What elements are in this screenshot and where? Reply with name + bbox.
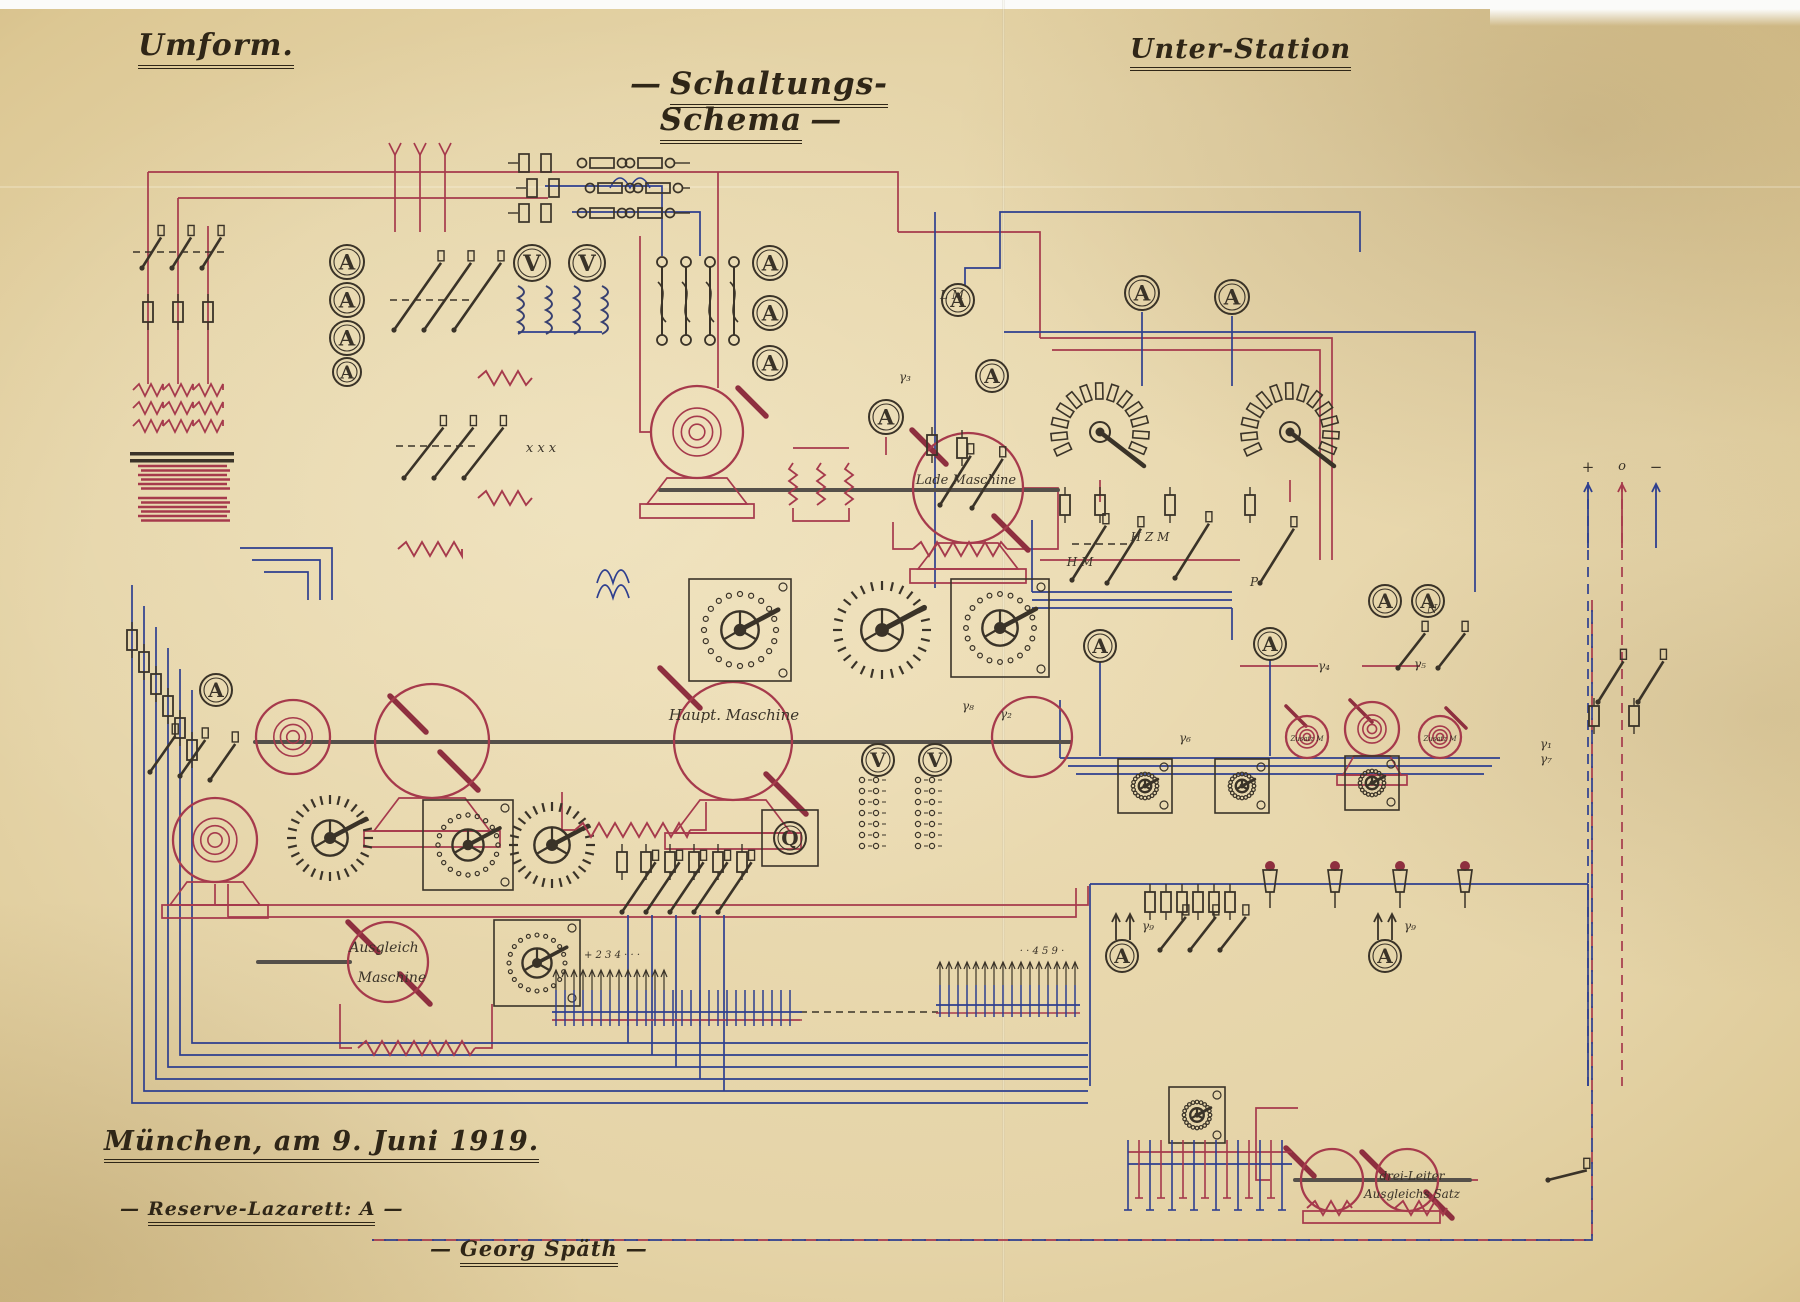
svg-text:x x x: x x x xyxy=(526,441,557,456)
svg-text:A: A xyxy=(338,327,356,352)
battery-combs xyxy=(552,962,1292,1210)
svg-text:Maschine: Maschine xyxy=(357,970,427,986)
cell-switches xyxy=(1051,383,1339,466)
ammeter-icon: A xyxy=(753,296,787,330)
page-title-right: Unter-Station xyxy=(1130,34,1351,71)
cartridge-fuse-icon xyxy=(657,257,667,345)
svg-text:A: A xyxy=(1091,634,1108,658)
knife-switch-icon xyxy=(207,732,238,783)
machines xyxy=(173,386,1461,1211)
fuse-row xyxy=(508,154,690,172)
machine-icon xyxy=(348,922,428,1002)
dash-right: — xyxy=(618,1236,656,1261)
svg-text:γ₅: γ₅ xyxy=(1414,657,1426,671)
svg-text:Ausgleich: Ausgleich xyxy=(347,940,418,956)
svg-text:Ausgleichs Satz: Ausgleichs Satz xyxy=(1363,1187,1461,1201)
svg-text:γ₇: γ₇ xyxy=(1540,752,1552,766)
rheostat-dial-icon xyxy=(1215,759,1269,813)
svg-text:H M: H M xyxy=(1066,555,1094,569)
svg-text:V: V xyxy=(577,251,596,277)
machine-icon xyxy=(651,386,743,478)
svg-text:A: A xyxy=(1133,282,1151,307)
svg-text:P: P xyxy=(1249,575,1259,589)
arrow-icon xyxy=(1388,914,1396,940)
ammeter-icon: A xyxy=(330,245,364,279)
svg-text:N: N xyxy=(1426,602,1438,616)
dash-left: — xyxy=(112,1198,148,1220)
dash-left: — xyxy=(622,66,670,102)
fuse-icon xyxy=(1225,884,1235,920)
footer-signature: —Georg Späth— xyxy=(422,1236,656,1261)
voltmeter-icon: V xyxy=(569,245,605,281)
battery-tap-contacts xyxy=(859,777,942,848)
rheostat-dial-icon xyxy=(951,579,1049,677)
svg-text:Haupt. Maschine: Haupt. Maschine xyxy=(668,706,799,724)
knife-switch-icon xyxy=(199,225,224,270)
ammeter-icon: A xyxy=(1369,940,1401,972)
cell-switch-icon xyxy=(1241,383,1339,466)
svg-text:· · 4 5 9 ·: · · 4 5 9 · xyxy=(1020,946,1065,957)
svg-text:V: V xyxy=(869,748,886,772)
rheostat-dial-icon xyxy=(689,579,791,681)
voltmeter-icon: V xyxy=(919,744,951,776)
ammeter-icon: A xyxy=(753,246,787,280)
fuse-icon xyxy=(1145,884,1155,920)
svg-text:γ₄: γ₄ xyxy=(1318,659,1330,673)
dash-right: — xyxy=(802,102,850,138)
voltmeter-icon: V xyxy=(514,245,550,281)
rheostat-dial-icon xyxy=(1345,756,1399,810)
ammeter-icon: A xyxy=(200,674,232,706)
ammeters-voltmeters: AAAAAAAAAAAAAAAAAAAVVVVQ xyxy=(200,245,1444,972)
svg-text:V: V xyxy=(522,251,541,277)
handwritten-labels: Lade MaschineHaupt. MaschineAusgleichMas… xyxy=(347,288,1662,1201)
knife-switch-icon xyxy=(461,416,506,481)
knife-switch-icon xyxy=(1172,512,1212,581)
machine-icon xyxy=(1345,702,1399,756)
knife-switch-icon xyxy=(139,225,164,270)
ammeter-icon: A xyxy=(753,346,787,380)
ammeter-icon: A xyxy=(1369,585,1401,617)
fuse-icon xyxy=(1193,884,1203,920)
arrow-icon xyxy=(1652,484,1660,548)
fuse-icon xyxy=(1165,487,1175,523)
footer-signature-text: Georg Späth xyxy=(460,1236,618,1267)
page-title-center-text: Schaltungs-Schema xyxy=(660,66,888,144)
scanned-schematic-page: AAAAAAAAAAAAAAAAAAAVVVVQLade MaschineHau… xyxy=(0,0,1800,1302)
cartridge-fuse-icon xyxy=(681,257,691,345)
ammeter-icon: A xyxy=(330,321,364,355)
knife-switch-icon xyxy=(1069,514,1109,583)
svg-text:A: A xyxy=(339,363,354,383)
meter-coils xyxy=(518,286,608,334)
cell-switch-icon xyxy=(1051,383,1149,466)
svg-text:γ₈: γ₈ xyxy=(962,699,974,713)
ammeter-icon: A xyxy=(330,283,364,317)
fuse-icon xyxy=(1161,884,1171,920)
knife-switch-icon xyxy=(451,251,504,333)
ammeter-icon: A xyxy=(1215,280,1249,314)
machine-brushes xyxy=(348,388,1466,1218)
svg-text:A: A xyxy=(877,406,895,431)
svg-text:A: A xyxy=(761,302,779,327)
svg-text:+: + xyxy=(1582,458,1595,476)
footer-unit-text: Reserve-Lazarett: A xyxy=(148,1198,375,1226)
schematic-canvas: AAAAAAAAAAAAAAAAAAAVVVVQLade MaschineHau… xyxy=(0,0,1800,1302)
page-title-center: —Schaltungs-Schema— xyxy=(555,66,955,138)
svg-text:H Z M: H Z M xyxy=(1130,530,1170,544)
footer-unit: —Reserve-Lazarett: A— xyxy=(112,1198,411,1220)
wires-red xyxy=(148,143,1622,1240)
arrow-icon xyxy=(1126,914,1134,940)
svg-text:A: A xyxy=(1376,944,1393,968)
knife-switch-icon xyxy=(147,724,178,775)
knife-switch-icon xyxy=(1435,621,1468,670)
svg-text:−: − xyxy=(1650,458,1663,476)
rheostat-dial-icon xyxy=(287,795,373,881)
svg-text:γ₃: γ₃ xyxy=(899,370,911,384)
svg-text:A: A xyxy=(1376,589,1393,613)
svg-text:γ₁: γ₁ xyxy=(1540,737,1552,751)
svg-text:A: A xyxy=(207,678,224,702)
svg-text:V: V xyxy=(926,748,943,772)
knife-switch-icon xyxy=(391,251,444,333)
fuse-icon xyxy=(617,844,627,880)
ammeter-icon: A xyxy=(333,358,361,386)
knife-switch-icon xyxy=(1635,649,1666,704)
svg-text:Lade Maschine: Lade Maschine xyxy=(915,473,1016,488)
svg-text:γ₉: γ₉ xyxy=(1404,919,1416,933)
voltmeter-icon: V xyxy=(862,744,894,776)
dash-right: — xyxy=(375,1198,411,1220)
rheostat-dial-icon xyxy=(1118,759,1172,813)
rheostat-dial-icon xyxy=(509,802,595,888)
svg-text:A: A xyxy=(338,289,356,314)
cartridge-fuse-icon xyxy=(729,257,739,345)
rheostat-dials xyxy=(287,579,1399,1143)
svg-text:L M: L M xyxy=(939,288,965,302)
knife-switch-icon xyxy=(169,225,194,270)
fuse-icon xyxy=(1245,487,1255,523)
svg-text:o: o xyxy=(1618,459,1626,474)
ammeter-icon: A xyxy=(869,400,903,434)
fuse-icon xyxy=(957,430,967,466)
machine-icon xyxy=(256,700,330,774)
arrow-icon xyxy=(1584,484,1592,548)
svg-text:γ₂: γ₂ xyxy=(1000,707,1012,721)
ammeter-icon: A xyxy=(1254,628,1286,660)
choke-bars xyxy=(130,452,234,463)
knife-switch-icon xyxy=(421,251,474,333)
ammeter-icon: A xyxy=(1084,630,1116,662)
instrument-icon: Q xyxy=(762,810,818,866)
arrow-icon xyxy=(1374,914,1382,940)
svg-text:A: A xyxy=(338,251,356,276)
arrows xyxy=(1112,484,1660,940)
fuse-row xyxy=(516,179,690,197)
rheostat-dial-icon xyxy=(494,920,580,1006)
arrow-icon xyxy=(1112,914,1120,940)
svg-text:A: A xyxy=(1223,286,1241,311)
machine-icon xyxy=(173,798,257,882)
footer-place-date: München, am 9. Juni 1919. xyxy=(104,1126,539,1163)
svg-text:γ₆: γ₆ xyxy=(1179,731,1191,745)
ammeter-icon: A xyxy=(1125,276,1159,310)
ammeter-icon: A xyxy=(976,360,1008,392)
svg-text:γ₉: γ₉ xyxy=(1142,919,1154,933)
arrow-icon xyxy=(1618,484,1626,548)
ammeter-icon: A xyxy=(1106,940,1138,972)
fuse-icon xyxy=(1060,487,1070,523)
knife-switch-icon xyxy=(1545,1158,1589,1182)
svg-text:A: A xyxy=(1113,944,1130,968)
svg-text:A: A xyxy=(1261,632,1278,656)
svg-text:Zusatz M: Zusatz M xyxy=(1422,735,1457,743)
svg-text:drei-Leiter: drei-Leiter xyxy=(1380,1169,1446,1183)
rheostat-dial-icon xyxy=(833,581,931,679)
cartridge-fuse-icon xyxy=(705,257,715,345)
svg-text:+ 2 3 4 · · ·: + 2 3 4 · · · xyxy=(584,950,640,961)
knife-switch-icon xyxy=(1257,517,1297,586)
page-title-left: Umform. xyxy=(138,28,294,69)
svg-text:A: A xyxy=(761,352,779,377)
dash-left: — xyxy=(422,1236,460,1261)
knife-switch-icon xyxy=(1104,517,1144,586)
svg-text:A: A xyxy=(761,252,779,277)
rheostat-dial-icon xyxy=(1169,1087,1225,1143)
svg-text:A: A xyxy=(983,364,1000,388)
rheostat-dial-icon xyxy=(423,800,513,890)
svg-text:Zusatz M: Zusatz M xyxy=(1289,735,1324,743)
svg-text:Q: Q xyxy=(781,826,798,850)
